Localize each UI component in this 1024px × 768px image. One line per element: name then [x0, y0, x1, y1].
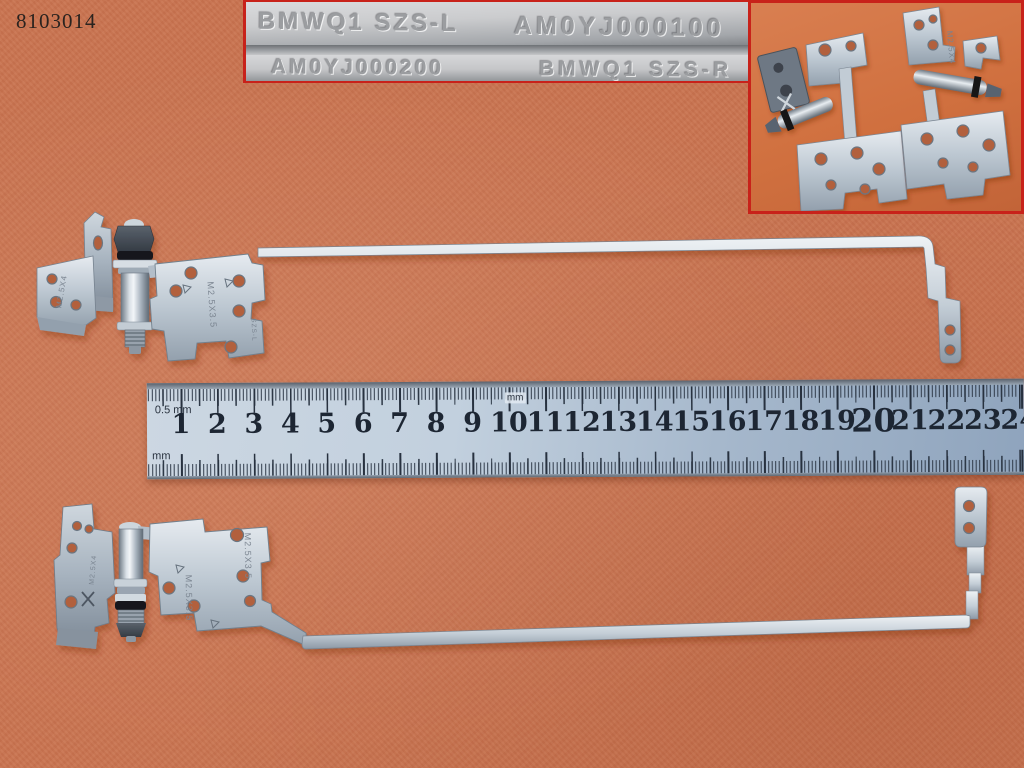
hinge-o-ring: [117, 251, 153, 260]
inset-left-hinge: [757, 33, 907, 211]
ruler-number: 22: [928, 405, 966, 436]
hinge-barrel: [121, 273, 149, 324]
ruler-number: 21: [891, 405, 929, 436]
ruler-number: 15: [672, 406, 710, 437]
ruler-number: 14: [636, 407, 674, 438]
left-hinge-rail: [258, 236, 961, 363]
right-hinge-tab: [955, 487, 987, 547]
ruler-mm-label-bottom: mm: [152, 450, 170, 462]
right-hinge: M2.5X4 M2.5X3.5 M2.5X3.5: [54, 487, 987, 649]
left-hinge-plate: [150, 254, 265, 361]
hinge-o-ring: [115, 601, 146, 610]
hinge-nut: [114, 226, 154, 252]
ruler-number: 24: [1000, 405, 1024, 436]
strip-top-right-marking: AM0YJ000100: [514, 12, 725, 44]
ruler-number: 16: [709, 406, 747, 437]
ruler-number: 3: [244, 409, 263, 440]
inset-drawing: M2.5X4: [751, 3, 1021, 211]
ruler-number: 9: [463, 408, 482, 439]
stamped-strip-bottom: AM0YJ000200 BMWQ1 SZS-R: [246, 55, 749, 81]
left-bracket-marking: M2.5X4: [54, 274, 69, 309]
stamped-strip-top: BMWQ1 SZS-L AM0YJ000100: [246, 2, 749, 45]
hinge-closeup-inset: M2.5X4: [748, 0, 1024, 214]
strip-divider: [246, 45, 749, 55]
ruler-number: 20: [851, 401, 896, 439]
left-hinge-flag-bracket: [84, 212, 113, 310]
hinge-threads: [118, 610, 144, 624]
ruler-number: 8: [427, 408, 446, 439]
hinge-screw-head: [119, 522, 141, 532]
hinge-screw-head: [124, 219, 144, 231]
ruler-number: 2: [208, 409, 227, 440]
ruler-number: 10: [490, 407, 528, 438]
right-bracket-marking: M2.5X4: [89, 555, 99, 586]
hinge-nut: [116, 623, 146, 637]
ruler-number: 7: [390, 408, 409, 439]
left-hinge-l-bracket: [37, 256, 96, 328]
ruler-number: 1: [171, 409, 190, 440]
right-plate-marking: M2.5X3.5: [243, 533, 254, 580]
strip-bottom-right-marking: BMWQ1 SZS-R: [539, 57, 732, 81]
ruler-mm-label-mid: mm: [505, 392, 526, 403]
ruler-number: 12: [563, 407, 601, 438]
inset-right-hinge: M2.5X4: [901, 7, 1010, 199]
x-stamp: [82, 592, 94, 606]
right-hinge-plate: [149, 519, 307, 646]
right-plate-marking-2: M2.5X3.5: [184, 575, 195, 622]
strip-bottom-left-marking: AM0YJ000200: [271, 55, 444, 80]
ruler-number: 6: [354, 408, 373, 439]
ruler-number: 11: [527, 407, 565, 438]
ruler-number: 13: [599, 407, 637, 438]
right-hinge-flag-bracket: [54, 504, 115, 645]
photo-id-label: 8103014: [16, 9, 97, 34]
ruler-number: 17: [745, 406, 783, 437]
part-number-strips-inset: BMWQ1 SZS-L AM0YJ000100 AM0YJ000200 BMWQ…: [243, 0, 752, 83]
right-hinge-rail: [302, 615, 970, 649]
left-hinge: M2.5X4 M2.5X3.5 SZS-L: [37, 212, 961, 363]
left-plate-marking-2: SZS-L: [250, 318, 258, 342]
ruler-number: 23: [964, 405, 1002, 436]
ruler-number: 18: [782, 406, 820, 437]
ruler-number: 5: [317, 408, 336, 439]
strip-top-left-marking: BMWQ1 SZS-L: [258, 8, 459, 38]
left-plate-marking: M2.5X3.5: [205, 281, 218, 328]
hinge-threads: [125, 330, 145, 347]
ruler: 0.5 mm mm mm 123456789101112131415161718…: [147, 379, 1024, 480]
ruler-number: 4: [281, 408, 300, 439]
hinge-barrel: [119, 529, 143, 581]
